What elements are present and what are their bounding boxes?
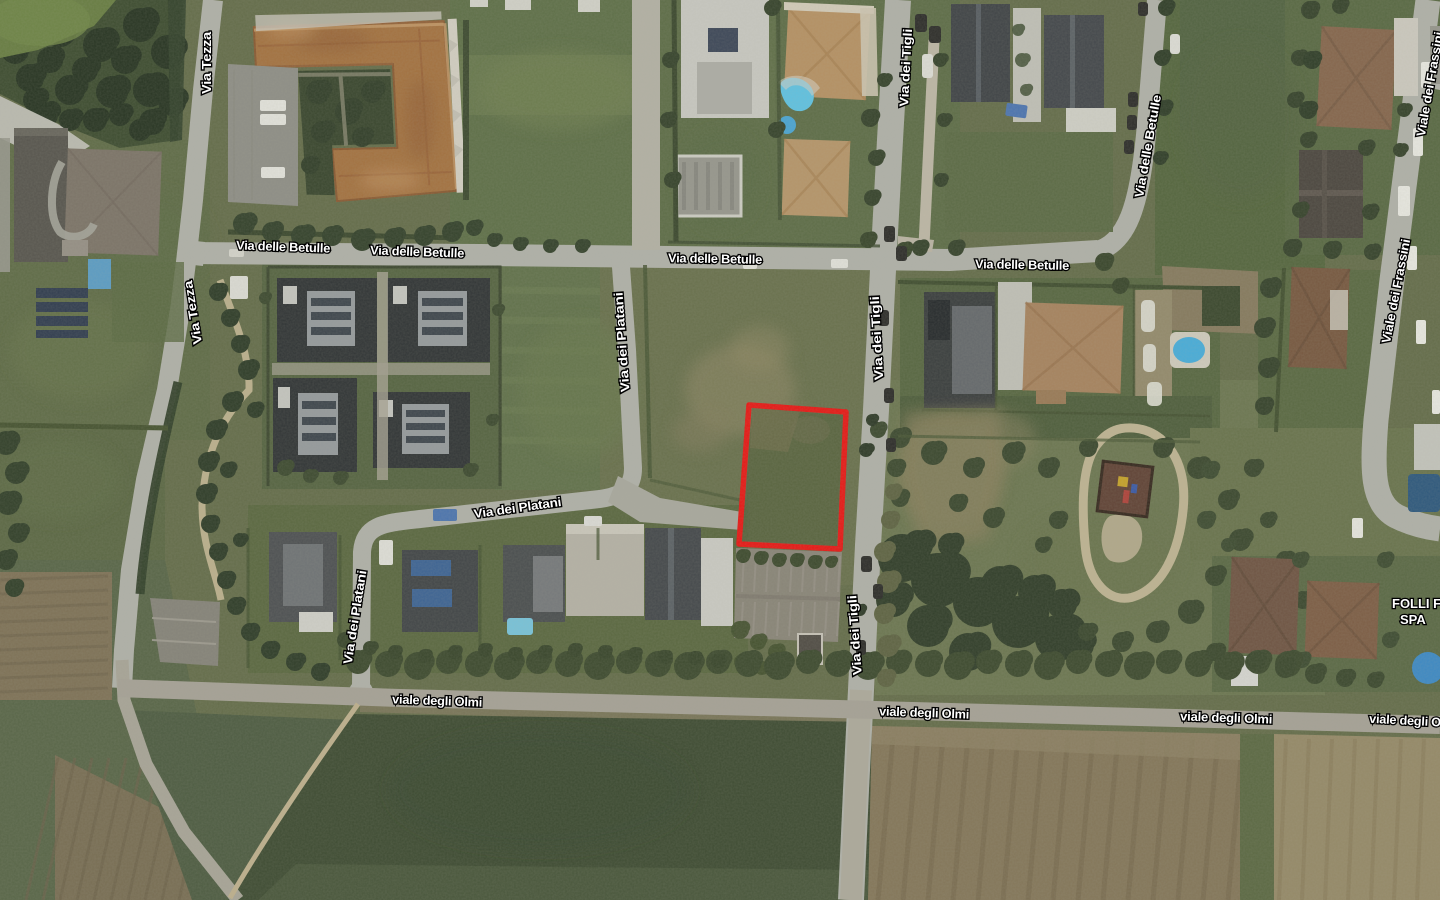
svg-text:Via Tezza: Via Tezza bbox=[200, 31, 214, 94]
svg-text:Via delle Betulle: Via delle Betulle bbox=[668, 251, 762, 267]
svg-text:SPA: SPA bbox=[1400, 612, 1426, 627]
svg-text:Via delle Betulle: Via delle Betulle bbox=[975, 257, 1069, 273]
svg-text:FOLLI FO: FOLLI FO bbox=[1392, 596, 1440, 611]
